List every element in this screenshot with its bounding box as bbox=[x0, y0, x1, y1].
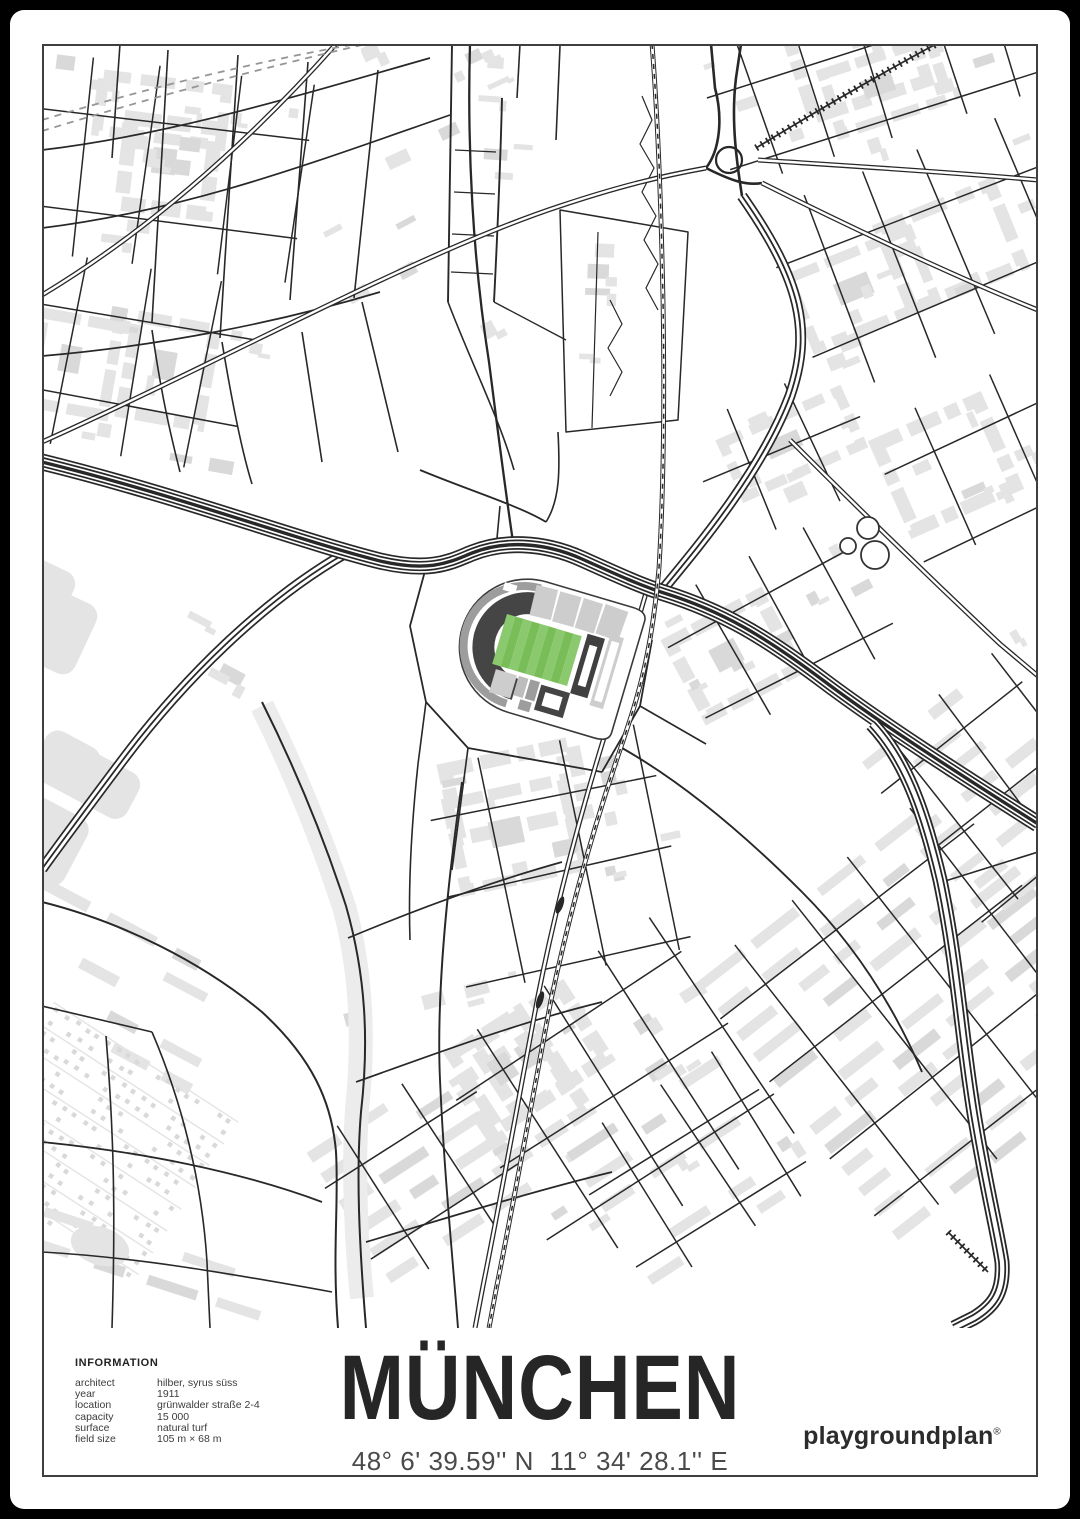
city-map bbox=[42, 44, 1038, 1328]
map-svg bbox=[42, 44, 1038, 1328]
brand-logo: playgroundplan® bbox=[803, 1422, 1001, 1451]
registered-mark: ® bbox=[993, 1427, 1001, 1438]
brand-name: playgroundplan bbox=[803, 1422, 993, 1450]
stadium-map-poster: INFORMATION architecthilber, syrus süssy… bbox=[10, 10, 1070, 1509]
title-block: MÜNCHEN 48° 6' 39.59'' N 11° 34' 28.1'' … bbox=[42, 1342, 1038, 1477]
city-title: MÜNCHEN bbox=[122, 1342, 959, 1434]
